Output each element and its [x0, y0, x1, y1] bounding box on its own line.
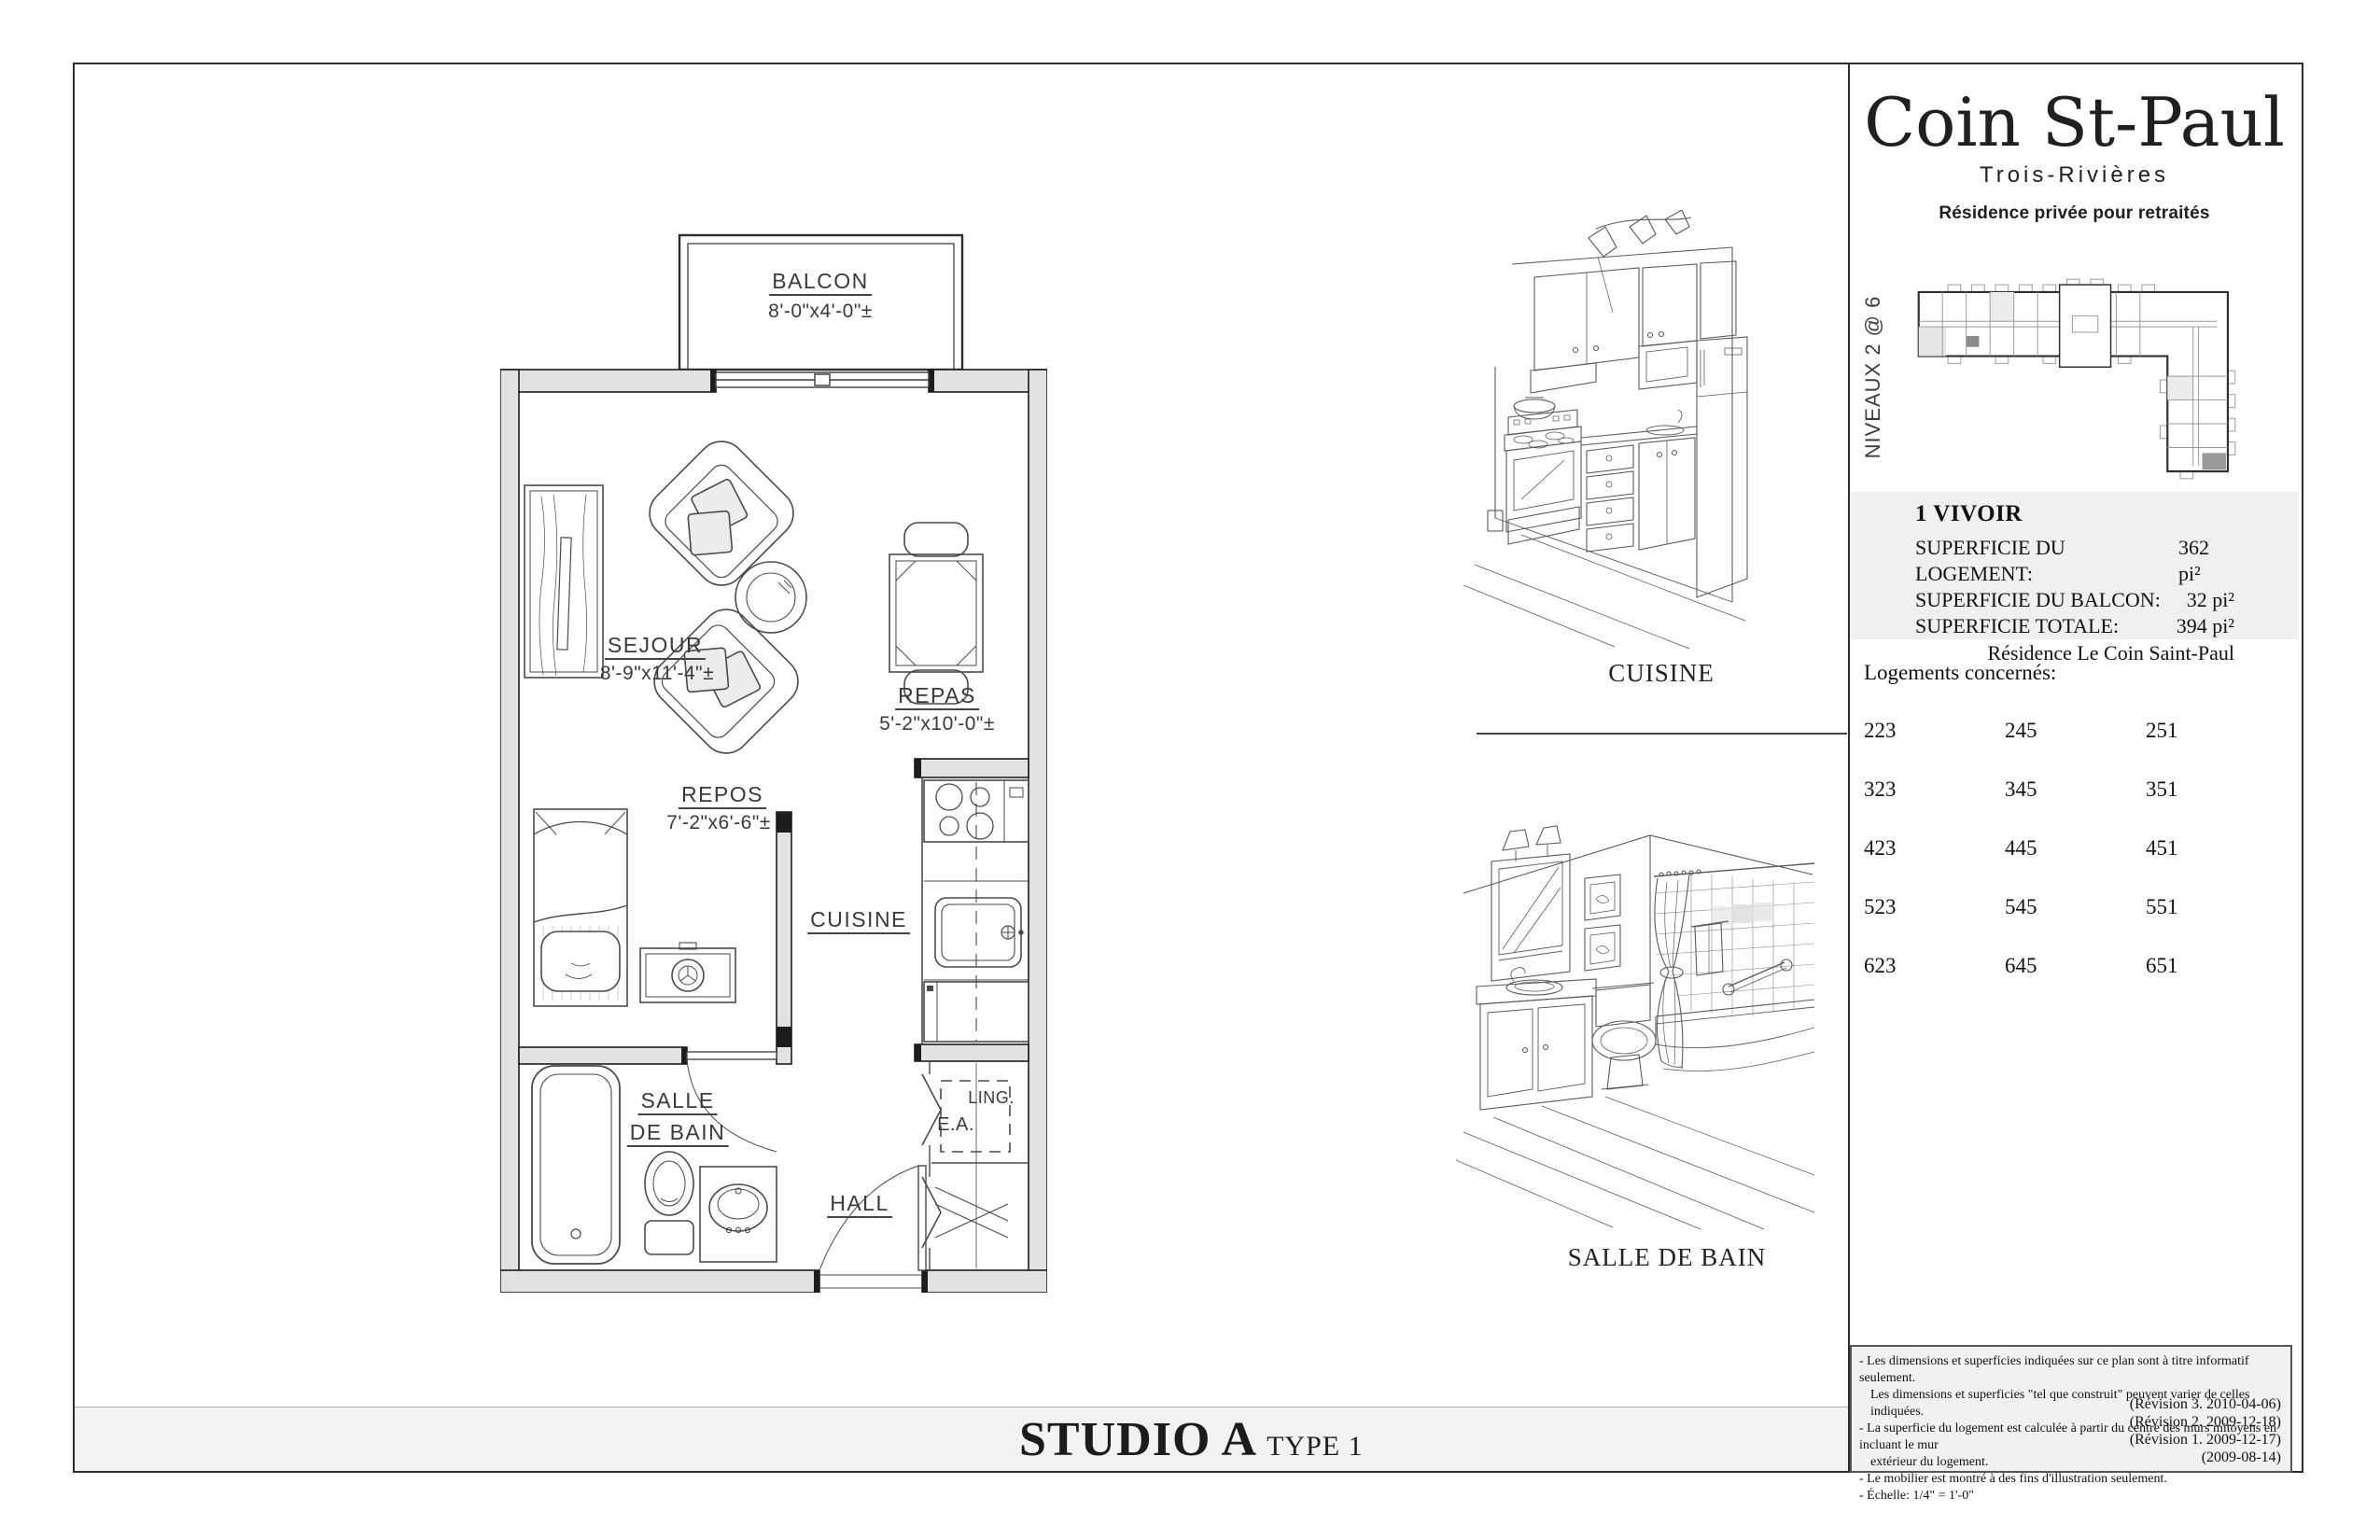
label-ling: LING.	[968, 1088, 1015, 1108]
unit-info-title: 1 VIVOIR	[1915, 501, 2299, 527]
row-label: SUPERFICIE DU LOGEMENT:	[1915, 535, 2178, 587]
unit-number: 423	[1864, 834, 2005, 862]
logo: Coin St-Paul Trois-Rivières Résidence pr…	[1857, 86, 2291, 224]
unit-info-row: SUPERFICIE DU BALCON: 32 pi²	[1915, 587, 2234, 613]
label-de-bain: DE BAIN	[627, 1120, 729, 1145]
unit-info-box: 1 VIVOIR SUPERFICIE DU LOGEMENT: 362 pi²…	[1850, 492, 2299, 639]
unit-number: 445	[2005, 834, 2146, 862]
unit-number: 651	[2146, 952, 2248, 980]
drawing-sheet: BALCON 8'-0"x4'-0"± SEJOUR 8'-9"x11'-4"±…	[0, 0, 2380, 1540]
logo-city: Trois-Rivières	[1857, 162, 2291, 189]
note-line: - Échelle: 1/4" = 1'-0"	[1859, 1488, 2283, 1505]
unit-number: 523	[1864, 893, 2005, 921]
dims-repas: 5'-2"x10'-0"±	[879, 713, 995, 735]
floor-plan-labels: BALCON 8'-0"x4'-0"± SEJOUR 8'-9"x11'-4"±…	[500, 228, 1047, 1293]
label-cuisine: CUISINE	[807, 907, 910, 932]
dims-balcon: 8'-0"x4'-0"±	[768, 301, 873, 323]
unit-number: 251	[2146, 717, 2248, 745]
unit-number: 623	[1864, 952, 2005, 980]
unit-number: 345	[2005, 776, 2146, 804]
caption-divider	[1477, 733, 1847, 735]
label-sejour: SEJOUR	[605, 633, 706, 658]
unit-number: 223	[1864, 717, 2005, 745]
row-label: SUPERFICIE DU BALCON:	[1915, 587, 2161, 613]
unit-info-row: SUPERFICIE TOTALE: 394 pi²	[1915, 613, 2234, 639]
revision-line: (Révision 2. 2009-12-18)	[2130, 1413, 2281, 1431]
bathroom-perspective-sketch	[1456, 789, 1820, 1237]
unit-info-row: SUPERFICIE DU LOGEMENT: 362 pi²	[1915, 535, 2234, 587]
dims-sejour: 8'-9"x11'-4"±	[600, 663, 714, 685]
unit-number: 245	[2005, 717, 2146, 745]
revision-line: (Révision 3. 2010-04-06)	[2130, 1395, 2281, 1413]
row-value: 32 pi²	[2187, 587, 2234, 613]
panel-divider	[1848, 63, 1850, 1473]
sheet-title-main: STUDIO A	[1019, 1412, 1257, 1467]
label-repas: REPAS	[895, 683, 979, 708]
logo-name: Coin St-Paul	[1857, 86, 2291, 159]
note-line: - Le mobilier est montré à des fins d'il…	[1859, 1471, 2283, 1488]
dims-repos: 7'-2"x6'-6"±	[666, 812, 771, 834]
label-balcon: BALCON	[769, 269, 872, 294]
key-plan-level-label: NIVEAUX 2 @ 6	[1861, 296, 1885, 459]
kitchen-caption: CUISINE	[1608, 659, 1715, 688]
revision-list: (Révision 3. 2010-04-06) (Révision 2. 20…	[2130, 1395, 2281, 1466]
building-key-plan	[1906, 278, 2272, 482]
revision-line: (Révision 1. 2009-12-17)	[2130, 1431, 2281, 1449]
note-line: - Les dimensions et superficies indiquée…	[1859, 1353, 2283, 1387]
unit-number: 323	[1864, 776, 2005, 804]
kitchen-perspective-sketch	[1456, 210, 1815, 649]
label-repos: REPOS	[679, 782, 766, 807]
unit-number: 545	[2005, 893, 2146, 921]
unit-number: 351	[2146, 776, 2248, 804]
sheet-title: STUDIO A TYPE 1	[1019, 1412, 1364, 1467]
label-ea: E.A.	[937, 1114, 974, 1136]
notes-box: - Les dimensions et superficies indiquée…	[1850, 1345, 2292, 1473]
units-table: 223 245 251 323 345 351 423 445 451 523 …	[1864, 717, 2248, 980]
revision-line: (2009-08-14)	[2130, 1449, 2281, 1466]
label-hall: HALL	[827, 1191, 892, 1216]
unit-number: 645	[2005, 952, 2146, 980]
label-salle: SALLE	[637, 1088, 717, 1113]
sheet-title-sub: TYPE 1	[1267, 1431, 1364, 1463]
row-value: 362 pi²	[2178, 535, 2234, 587]
row-value: 394 pi²	[2177, 613, 2234, 639]
unit-info-rows: SUPERFICIE DU LOGEMENT: 362 pi² SUPERFIC…	[1915, 535, 2234, 639]
unit-number: 451	[2146, 834, 2248, 862]
unit-number: 551	[2146, 893, 2248, 921]
units-title: Logements concernés:	[1864, 661, 2056, 685]
title-strip	[75, 1407, 1848, 1471]
logo-tagline: Résidence privée pour retraités	[1857, 203, 2291, 224]
row-label: SUPERFICIE TOTALE:	[1915, 613, 2119, 639]
bathroom-caption: SALLE DE BAIN	[1568, 1243, 1766, 1272]
